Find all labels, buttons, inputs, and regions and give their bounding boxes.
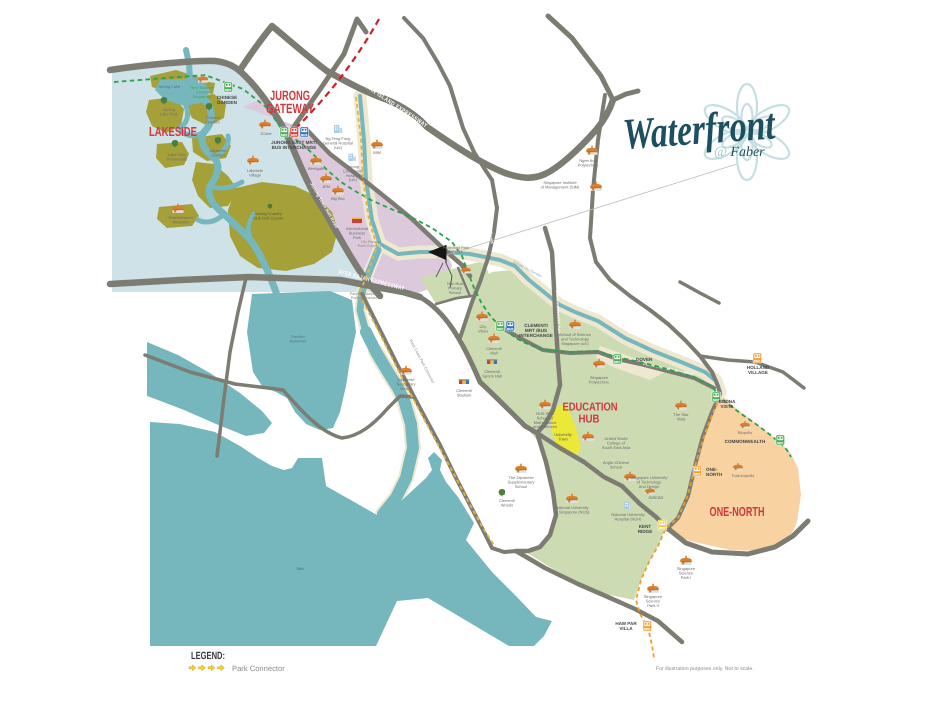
svg-text:MRT: MRT	[291, 133, 298, 137]
svg-text:Ulu PandanPark Connector: Ulu PandanPark Connector	[358, 240, 385, 248]
svg-text:EDUCATION: EDUCATION	[563, 402, 618, 414]
svg-text:Jurong Lake: Jurong Lake	[158, 84, 181, 89]
svg-text:LEGEND:: LEGEND:	[191, 650, 225, 662]
svg-text:DOVER: DOVER	[636, 357, 653, 362]
svg-text:CHINESEGARDEN: CHINESEGARDEN	[217, 95, 238, 105]
svg-text:BUS: BUS	[301, 133, 307, 137]
svg-text:HOLLANDVILLAGE: HOLLANDVILLAGE	[747, 365, 770, 375]
svg-text:ONE-NORTH: ONE-NORTH	[710, 504, 765, 519]
svg-text:IMM: IMM	[373, 150, 381, 155]
svg-text:MRT: MRT	[659, 526, 666, 530]
svg-text:SingaporePolytechnic: SingaporePolytechnic	[589, 375, 609, 384]
svg-text:@ Faber: @ Faber	[714, 145, 765, 160]
svg-text:GATEWAY: GATEWAY	[266, 101, 314, 116]
svg-text:Lake ViewPromenade: Lake ViewPromenade	[167, 152, 188, 161]
svg-text:LAKESIDE: LAKESIDE	[149, 124, 197, 139]
svg-text:Park Connector: Park Connector	[232, 664, 285, 673]
svg-text:JURONG EAST MRT/BUS INTERCHANG: JURONG EAST MRT/BUS INTERCHANGE	[271, 140, 317, 150]
svg-text:MRT: MRT	[614, 360, 621, 364]
svg-text:ChineseGarden: ChineseGarden	[206, 115, 221, 124]
svg-text:JEM: JEM	[322, 184, 330, 189]
svg-text:MRT: MRT	[694, 472, 701, 476]
svg-text:Singapore Instituteof Manageme: Singapore Instituteof Management (SIM)	[541, 180, 580, 189]
svg-text:Westgate: Westgate	[308, 166, 326, 171]
svg-text:MRT: MRT	[497, 327, 504, 331]
svg-text:School of Scienceand Technolog: School of Scienceand TechnologySingapore…	[559, 332, 592, 346]
svg-text:Jurong CountryClub Golf Course: Jurong CountryClub Golf Course	[253, 211, 284, 220]
svg-text:MRT: MRT	[777, 441, 784, 445]
svg-text:MRT: MRT	[754, 359, 761, 363]
svg-text:NUS HighSchool ofMathematicsan: NUS HighSchool ofMathematicsand Sciences	[533, 411, 557, 429]
svg-text:Big Box: Big Box	[331, 196, 345, 201]
svg-text:ClementiWoods: ClementiWoods	[499, 498, 515, 507]
svg-text:BUS: BUS	[507, 327, 513, 331]
svg-text:National UniversityHospital (N: National UniversityHospital (NUH)	[611, 512, 644, 521]
svg-text:Pandan GardensPark Connector: Pandan GardensPark Connector	[350, 292, 379, 300]
svg-text:INSEAD: INSEAD	[649, 495, 664, 500]
svg-text:For illustration purposes only: For illustration purposes only. Not to s…	[656, 666, 754, 672]
svg-text:BUONAVISTA: BUONAVISTA	[719, 399, 737, 409]
svg-text:ClementiSports Hall: ClementiSports Hall	[482, 369, 502, 378]
svg-text:Biopolis: Biopolis	[738, 430, 752, 435]
svg-text:HUB: HUB	[579, 414, 600, 426]
svg-text:Sea: Sea	[296, 566, 304, 571]
svg-text:PandanReservoir: PandanReservoir	[290, 334, 307, 343]
svg-text:MRT: MRT	[644, 627, 651, 631]
svg-text:Ngee AnnPolytechnic: Ngee AnnPolytechnic	[578, 158, 598, 167]
svg-text:ClementiStadium: ClementiStadium	[456, 388, 472, 397]
svg-text:MRT: MRT	[225, 88, 232, 92]
svg-text:MRT: MRT	[281, 133, 288, 137]
svg-text:COMMONWEALTH: COMMONWEALTH	[725, 439, 766, 444]
svg-text:JCube: JCube	[260, 131, 272, 136]
svg-text:Fusionopolis: Fusionopolis	[732, 473, 754, 478]
svg-text:KENTRIDGE: KENTRIDGE	[638, 524, 653, 534]
svg-text:National Universityof Singapor: National Universityof Singapore (NUS)	[555, 505, 591, 514]
